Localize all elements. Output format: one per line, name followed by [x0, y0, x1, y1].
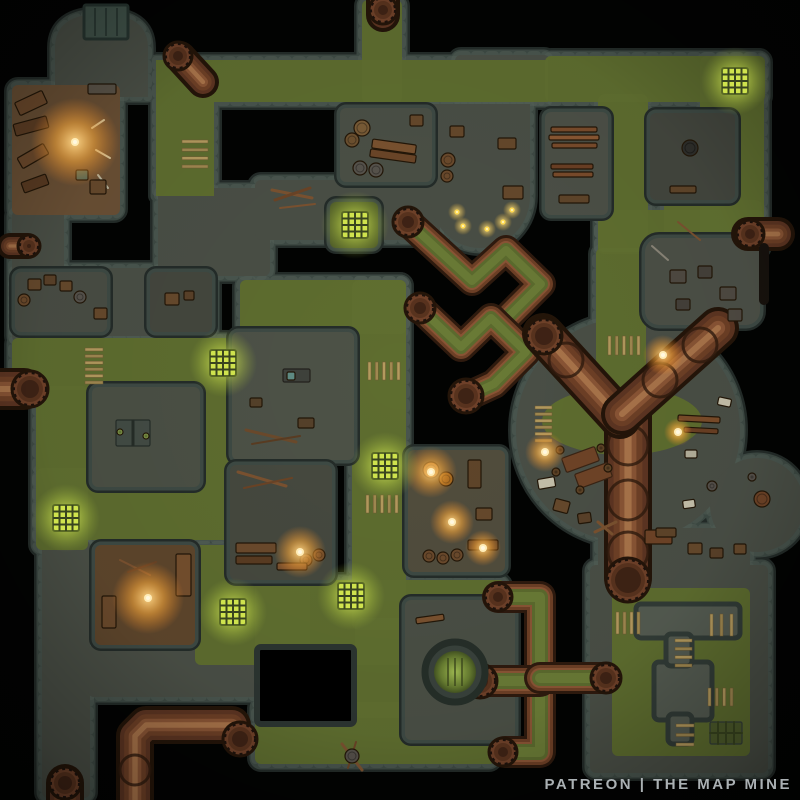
gold-glint	[511, 209, 513, 211]
battle-map-screenshot: PATREON | THE MAP MINE	[0, 0, 800, 800]
vignette-overlay	[0, 0, 800, 800]
torch-flame-core	[73, 140, 77, 144]
gold-glint	[456, 211, 458, 213]
sewer-map-canvas: PATREON | THE MAP MINE	[0, 0, 800, 800]
torch-flame-core	[429, 470, 433, 474]
gold-glint	[486, 228, 488, 230]
torch-flame-core	[676, 430, 680, 434]
torch-flame-core	[298, 550, 302, 554]
torch-flame-core	[146, 596, 150, 600]
torch-flame-core	[543, 450, 547, 454]
torch-flame-core	[661, 353, 665, 357]
gold-glint	[462, 225, 464, 227]
watermark-text: PATREON | THE MAP MINE	[544, 776, 792, 793]
torch-flame-core	[481, 546, 485, 550]
torch-flame-core	[450, 520, 454, 524]
gold-glint	[502, 221, 504, 223]
